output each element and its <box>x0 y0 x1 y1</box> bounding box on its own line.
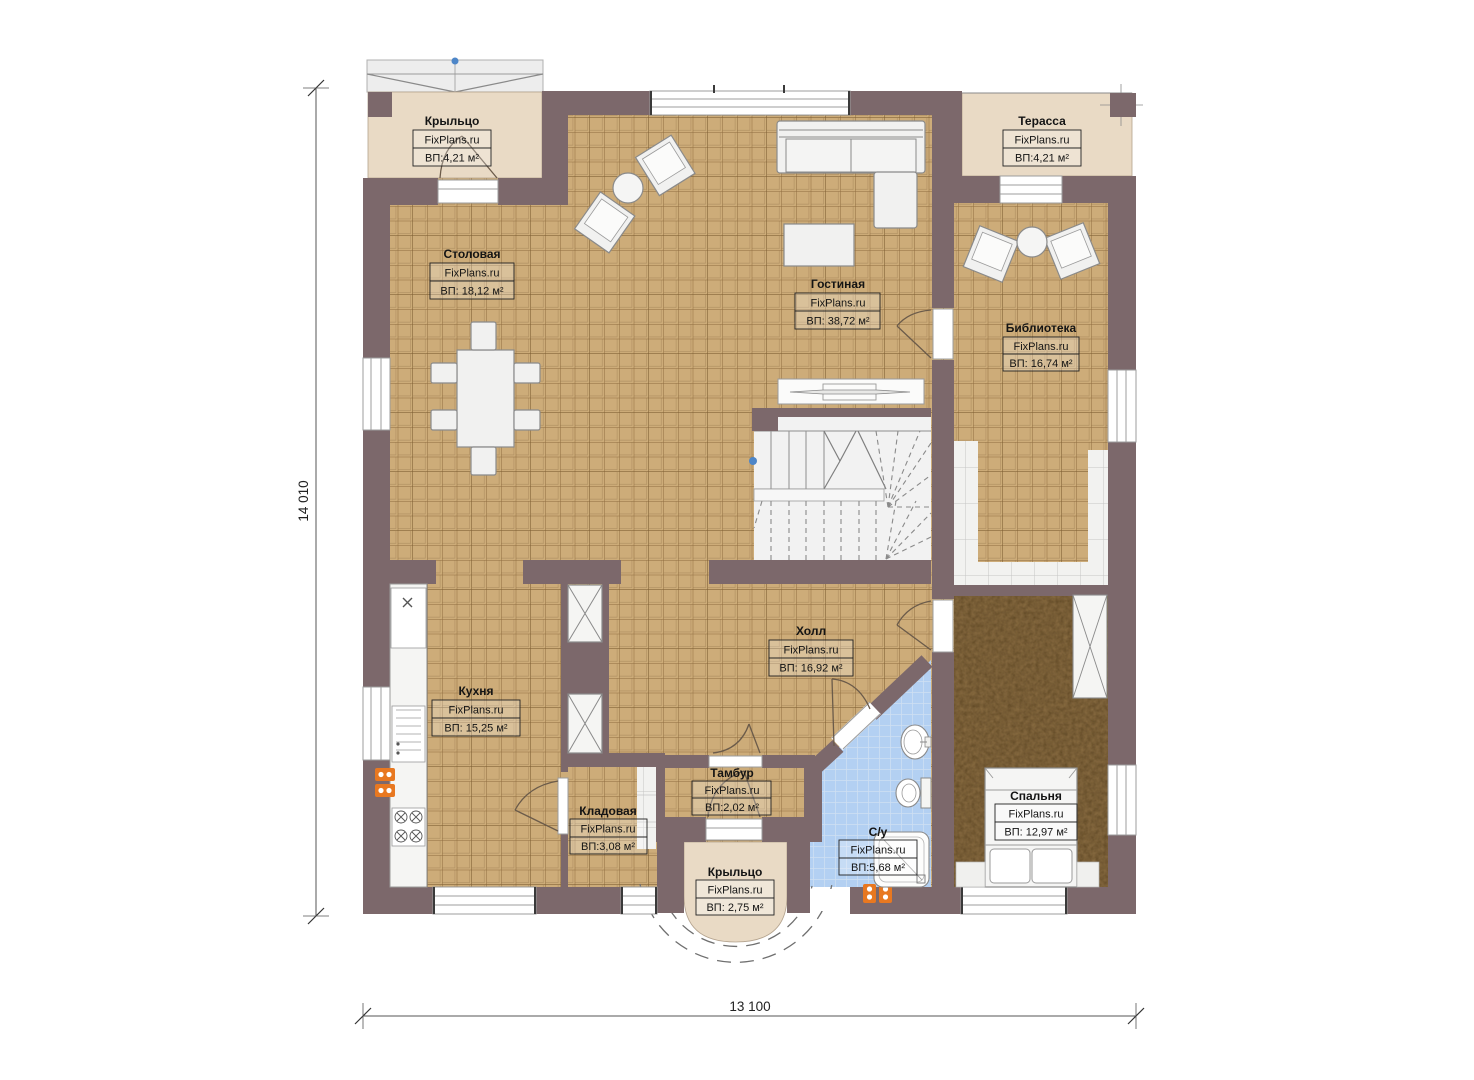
svg-text:Столовая: Столовая <box>443 247 500 261</box>
svg-text:FixPlans.ru: FixPlans.ru <box>810 298 865 310</box>
svg-text:ВП: 38,72 м²: ВП: 38,72 м² <box>806 316 870 328</box>
svg-text:Спальня: Спальня <box>1010 789 1062 803</box>
svg-text:FixPlans.ru: FixPlans.ru <box>444 268 499 280</box>
svg-text:Кухня: Кухня <box>458 684 493 698</box>
svg-text:ВП:5,68 м²: ВП:5,68 м² <box>851 862 905 874</box>
svg-text:FixPlans.ru: FixPlans.ru <box>1008 809 1063 821</box>
svg-text:13 100: 13 100 <box>729 999 770 1014</box>
svg-text:ВП:3,08 м²: ВП:3,08 м² <box>581 841 635 853</box>
svg-text:ВП: 12,97 м²: ВП: 12,97 м² <box>1004 827 1068 839</box>
svg-text:FixPlans.ru: FixPlans.ru <box>783 645 838 657</box>
svg-text:С/у: С/у <box>869 825 888 839</box>
svg-text:ВП: 16,74 м²: ВП: 16,74 м² <box>1009 358 1073 370</box>
svg-text:FixPlans.ru: FixPlans.ru <box>1014 135 1069 147</box>
svg-text:Терасса: Терасса <box>1018 114 1066 128</box>
svg-text:Крыльцо: Крыльцо <box>708 865 763 879</box>
svg-text:FixPlans.ru: FixPlans.ru <box>424 135 479 147</box>
svg-text:ВП:4,21 м²: ВП:4,21 м² <box>1015 153 1069 165</box>
svg-text:14 010: 14 010 <box>296 480 311 521</box>
svg-text:FixPlans.ru: FixPlans.ru <box>580 824 635 836</box>
svg-text:ВП:2,02 м²: ВП:2,02 м² <box>705 802 759 814</box>
svg-text:FixPlans.ru: FixPlans.ru <box>707 885 762 897</box>
svg-text:ВП: 2,75 м²: ВП: 2,75 м² <box>706 902 763 914</box>
svg-text:FixPlans.ru: FixPlans.ru <box>704 785 759 797</box>
svg-text:FixPlans.ru: FixPlans.ru <box>850 845 905 857</box>
svg-text:FixPlans.ru: FixPlans.ru <box>448 705 503 717</box>
svg-text:Кладовая: Кладовая <box>579 804 636 818</box>
svg-text:Крыльцо: Крыльцо <box>425 114 480 128</box>
svg-text:ВП: 18,12 м²: ВП: 18,12 м² <box>440 286 504 298</box>
svg-text:FixPlans.ru: FixPlans.ru <box>1013 341 1068 353</box>
svg-text:ВП: 16,92 м²: ВП: 16,92 м² <box>779 663 843 675</box>
svg-text:ВП:4,21 м²: ВП:4,21 м² <box>425 153 479 165</box>
svg-text:ВП: 15,25 м²: ВП: 15,25 м² <box>444 723 508 735</box>
svg-text:Гостиная: Гостиная <box>811 277 865 291</box>
svg-text:Тамбур: Тамбур <box>710 766 754 780</box>
svg-text:Холл: Холл <box>796 624 826 638</box>
svg-text:Библиотека: Библиотека <box>1006 321 1077 335</box>
